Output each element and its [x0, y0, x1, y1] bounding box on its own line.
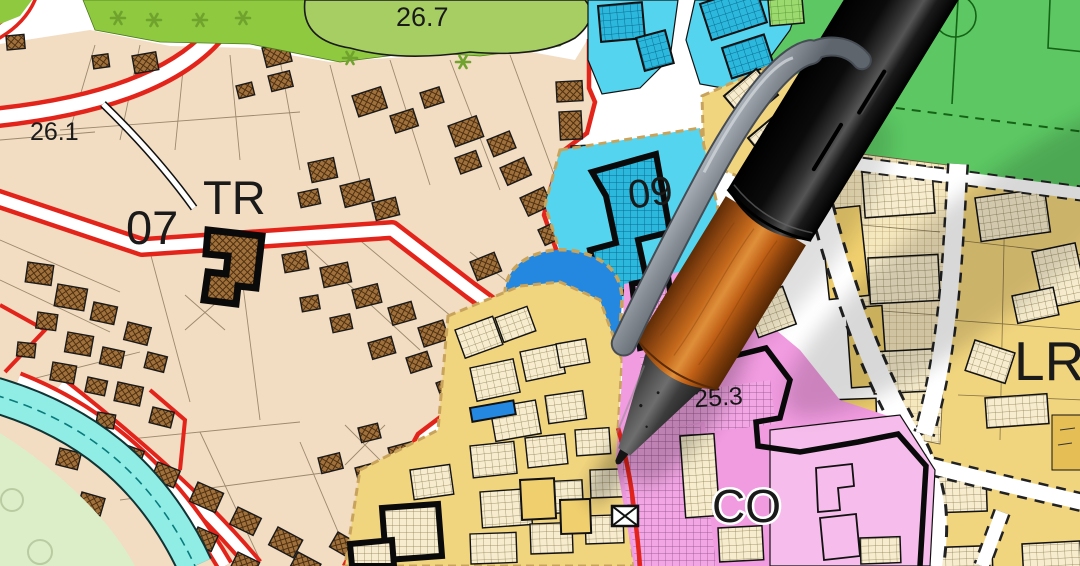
label-tr: TR	[203, 171, 266, 224]
label-26-7: 26.7	[396, 2, 449, 32]
zoning-map-screenshot: 26.7	[0, 0, 1080, 566]
lr-dark-parcel	[1052, 415, 1080, 470]
label-09: 09	[626, 168, 676, 217]
label-co: CO	[712, 480, 781, 532]
label-lr: LR	[1014, 330, 1080, 392]
label-26-1: 26.1	[30, 118, 79, 146]
map-canvas: 26.7	[0, 0, 1080, 566]
green-hatched-parcel	[768, 0, 804, 26]
cross-parcel-mark	[612, 506, 638, 526]
label-07: 07	[126, 201, 178, 254]
